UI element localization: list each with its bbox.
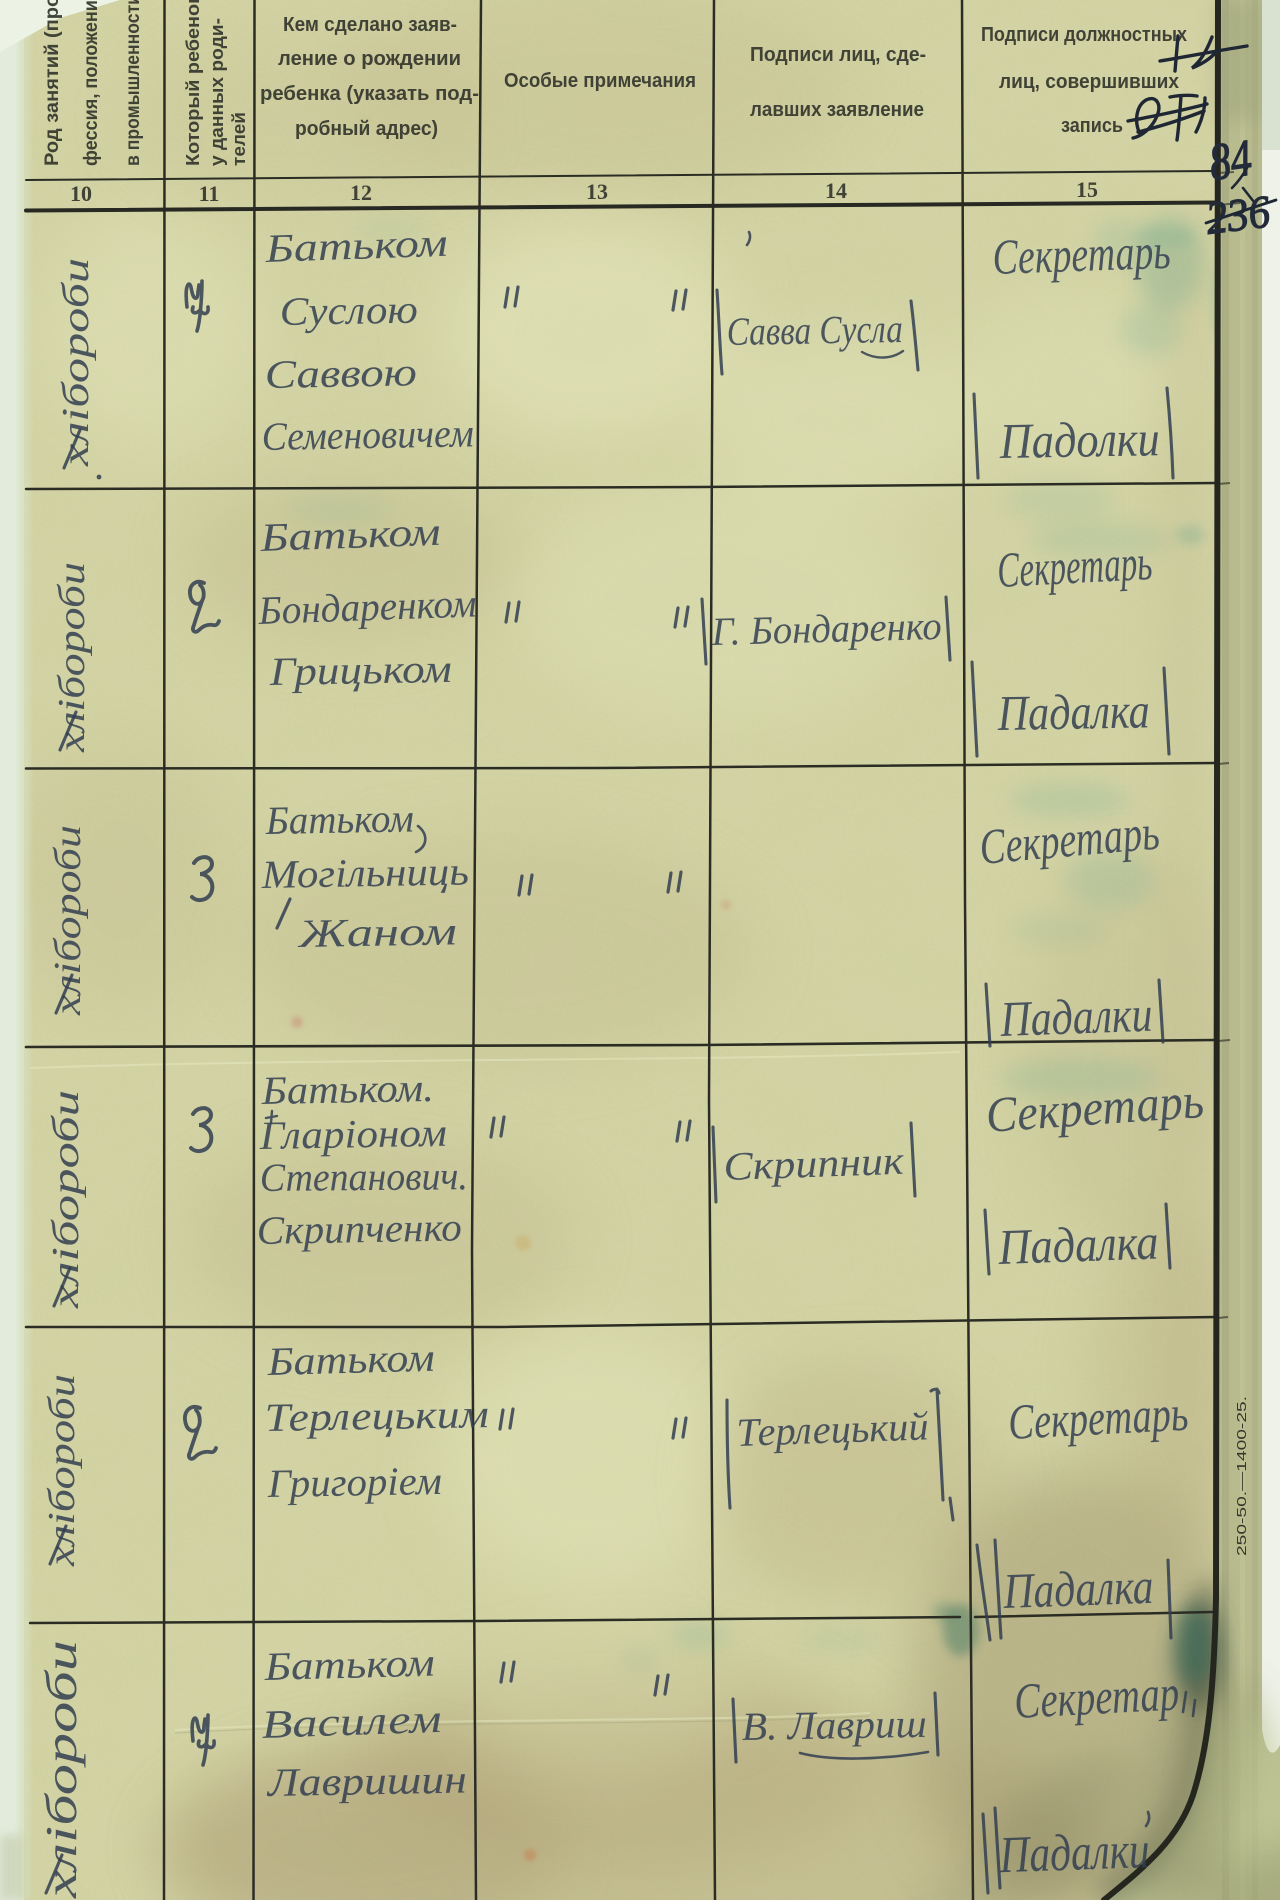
svg-text:Скрипник: Скрипник — [723, 1138, 905, 1189]
svg-text:Семеновичем: Семеновичем — [261, 410, 474, 459]
svg-text:хлібороби: хлібороби — [55, 258, 97, 467]
svg-text:Батьком: Батьком — [264, 795, 414, 843]
svg-text:Терлецький: Терлецький — [736, 1403, 929, 1455]
svg-text:Г. Бондаренко: Г. Бондаренко — [710, 603, 942, 654]
svg-text:Особые примечания: Особые примечания — [504, 69, 696, 92]
svg-text:84: 84 — [1206, 130, 1256, 192]
svg-text:Грицьком: Грицьком — [268, 646, 452, 694]
svg-text:15: 15 — [1076, 177, 1098, 202]
svg-text:236: 236 — [1203, 186, 1273, 244]
svg-text:Подписи должностных: Подписи должностных — [981, 24, 1187, 46]
svg-text:робный адрес): робный адрес) — [295, 118, 438, 140]
svg-text:лиц, совершивших: лиц, совершивших — [999, 71, 1179, 93]
svg-text:Кем сделано заяв-: Кем сделано заяв- — [283, 14, 457, 36]
svg-text:Саввою: Саввою — [264, 349, 417, 397]
svg-text:Падолки: Падолки — [998, 410, 1160, 469]
svg-text:хлібороби: хлібороби — [41, 1374, 83, 1567]
svg-text:Батьком.: Батьком. — [260, 1065, 434, 1113]
svg-text:10: 10 — [70, 181, 92, 206]
svg-text:Савва Сусла: Савва Сусла — [726, 306, 903, 354]
svg-text:Падалки: Падалки — [998, 1822, 1151, 1884]
svg-text:хлібороби: хлібороби — [47, 825, 89, 1016]
svg-text:хлібороби: хлібороби — [45, 1090, 87, 1309]
svg-text:Секретарь: Секретарь — [996, 534, 1154, 598]
svg-text:в промышленности: в промышленности — [123, 0, 144, 166]
svg-text:фессия, положение: фессия, положение — [81, 0, 102, 166]
svg-text:В. Лавриш: В. Лавриш — [741, 1701, 927, 1749]
svg-text:Падалка: Падалка — [996, 682, 1150, 741]
svg-text:Падалки: Падалки — [999, 986, 1154, 1047]
svg-text:хлібороби: хлібороби — [37, 1640, 86, 1899]
svg-text:250-50.—1400-25.: 250-50.—1400-25. — [1235, 1396, 1249, 1556]
svg-text:Батьком: Батьком — [259, 509, 442, 560]
svg-text:ление о рождении: ление о рождении — [278, 48, 461, 70]
svg-text:лавших заявление: лавших заявление — [750, 99, 924, 121]
svg-text:11: 11 — [199, 181, 220, 206]
svg-text:Гларіоном: Гларіоном — [258, 1110, 447, 1158]
svg-text:Суслою: Суслою — [279, 287, 418, 334]
svg-text:Батьком: Батьком — [264, 220, 449, 271]
svg-text:ребенка (указать под-: ребенка (указать под- — [260, 83, 479, 105]
svg-text:Род занятий (про-: Род занятий (про- — [42, 0, 63, 166]
svg-text:Секретарь: Секретарь — [1007, 1385, 1190, 1450]
svg-text:Который ребенок: Который ребенок — [183, 0, 203, 166]
svg-text:13: 13 — [586, 179, 608, 204]
svg-text:Жаном: Жаном — [296, 908, 457, 956]
svg-text:Василем: Василем — [261, 1696, 442, 1747]
svg-text:Секретар: Секретар — [1013, 1664, 1181, 1729]
svg-text:Скрипченко: Скрипченко — [256, 1204, 462, 1253]
svg-text:Могільниць: Могільниць — [260, 848, 469, 897]
svg-text:Подписи лиц, сде-: Подписи лиц, сде- — [750, 44, 926, 66]
svg-text:14: 14 — [825, 178, 847, 203]
svg-text:Степанович.: Степанович. — [260, 1153, 468, 1200]
svg-text:Батьком: Батьком — [266, 1335, 435, 1384]
svg-text:Григоріем: Григоріем — [266, 1458, 442, 1506]
svg-text:у данных роди-: у данных роди- — [207, 18, 227, 166]
svg-text:телей: телей — [229, 112, 249, 166]
svg-text:Лавришин: Лавришин — [265, 1757, 467, 1806]
svg-text:хлібороби: хлібороби — [51, 562, 93, 753]
svg-text:Бондаренком: Бондаренком — [257, 580, 477, 633]
svg-text:Падалка: Падалка — [1002, 1558, 1155, 1619]
svg-text:запись: запись — [1061, 115, 1123, 137]
svg-text:Терлецьким: Терлецьким — [264, 1391, 489, 1440]
svg-text:12: 12 — [350, 180, 372, 205]
svg-text:Батьком: Батьком — [263, 1640, 435, 1689]
svg-text:Падалка: Падалка — [997, 1213, 1160, 1275]
